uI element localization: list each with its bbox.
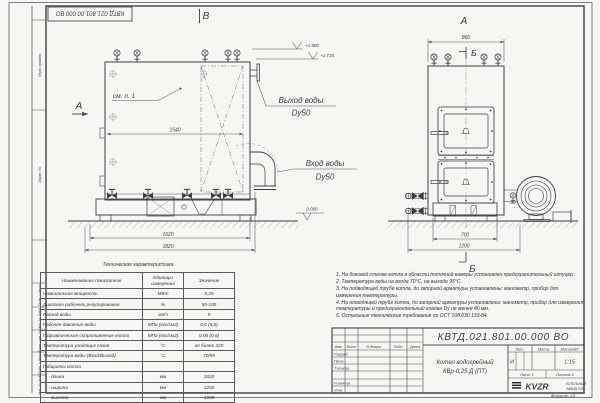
section-arrow-label: А xyxy=(75,101,83,112)
format-label: Формат А3 xyxy=(551,394,576,399)
spec-header-cell: Значение xyxy=(184,273,235,289)
spec-cell: Гидравлическое сопротивление котла xyxy=(41,330,143,340)
inlet-dn: Dy50 xyxy=(316,173,335,182)
frame-label: Справ. № xyxy=(38,167,42,183)
tb-col-podp: Подп. xyxy=(393,345,403,349)
spec-cell: - высота xyxy=(41,392,143,402)
tb-role: Н.контр. xyxy=(334,380,351,385)
spec-cell: 1200 xyxy=(184,382,235,392)
table-row: Рабочее давление водыМПа (кгс/см2)0,6 (6… xyxy=(41,320,235,330)
doc-number: КВТД.021.801.00.000 ВО xyxy=(438,332,570,343)
tb-col-data: Дата xyxy=(409,345,420,349)
spec-header-cell: Наименование показателя xyxy=(41,273,143,289)
spec-cell: % xyxy=(143,299,184,309)
note-item: 4. На отводящей трубе котла, до запорной… xyxy=(336,300,584,312)
spec-cell: МПа (кгс/см2) xyxy=(143,330,184,340)
table-row: Температура воды (Вход/Выход)°С70/95 xyxy=(41,351,235,361)
spec-cell xyxy=(143,361,184,371)
spec-cell: Диапазон рабочего регулирования xyxy=(41,299,143,309)
spec-table: Наименование показателя Единицы измерени… xyxy=(40,272,235,403)
tb-role: Утв. xyxy=(334,387,343,392)
spec-cell: 1820 xyxy=(184,372,235,382)
spec-cell: °С xyxy=(143,351,184,361)
note-item: 3. На подводящей трубе котла, до запорно… xyxy=(336,286,584,298)
side-view-label: А xyxy=(460,16,468,27)
mass-label: Масса xyxy=(538,347,549,351)
table-row: Габариты котла xyxy=(41,361,235,371)
section-b-top-label: Б xyxy=(471,48,477,58)
front-view-label: В xyxy=(203,11,210,22)
top-stamp-number: КВТД.021.801.00.000 ВО xyxy=(55,10,124,16)
dim-1820: 1820 xyxy=(162,244,173,250)
spec-cell: 70/95 xyxy=(184,351,235,361)
table-row: - ширинамм1200 xyxy=(41,382,235,392)
spec-cell: мм xyxy=(143,372,184,382)
frame-label: Перв. примен. xyxy=(38,53,42,77)
elev-1900: +1.900 xyxy=(305,43,319,48)
dim-1620: 1620 xyxy=(162,232,173,238)
spec-cell: мм xyxy=(143,392,184,402)
spec-cell: 9 xyxy=(184,309,235,319)
tb-col-izm: Изм. xyxy=(334,345,342,349)
spec-header-row: Наименование показателя Единицы измерени… xyxy=(41,273,235,289)
sheets-total: Листов 2 xyxy=(555,372,575,377)
dim-860: 860 xyxy=(462,35,471,41)
note-item: 2. Температура воды на входе 70°С, на вы… xyxy=(336,279,584,285)
elev-1735: +1.735 xyxy=(320,53,334,58)
outlet-label: Выход воды xyxy=(279,96,324,105)
tb-role: Пров. xyxy=(334,358,345,363)
see-item-text: см. п. 1 xyxy=(113,93,136,100)
note-item: 1. На боковой стенке котла в области топ… xyxy=(336,272,584,278)
spec-cell: м3/ч xyxy=(143,309,184,319)
table-row: Номинальная мощностьМВт0,25 xyxy=(41,289,235,299)
outlet-dn: Dy50 xyxy=(292,109,311,118)
spec-cell: 50-100 xyxy=(184,299,235,309)
tb-role: Разраб. xyxy=(334,351,348,356)
drawing-sheet: { "frame": { "stamp_number": "КВТД.021.8… xyxy=(0,0,600,400)
spec-cell: 1900 xyxy=(184,392,235,402)
inlet-label: Вход воды xyxy=(306,159,345,168)
notes-block: 1. На боковой стенке котла в области топ… xyxy=(336,272,584,320)
table-row: Диапазон рабочего регулирования%50-100 xyxy=(41,299,235,309)
tb-role: Т.контр. xyxy=(334,365,350,370)
spec-cell: Температура уходящих газов xyxy=(41,340,143,350)
ground-line xyxy=(388,221,578,228)
table-row: Температура уходящих газов°Сне более 220 xyxy=(41,340,235,350)
lit-label: Лит. xyxy=(515,347,525,351)
spec-cell: 0,25 xyxy=(184,289,235,299)
spec-cell: Температура воды (Вход/Выход) xyxy=(41,351,143,361)
table-row: Гидравлическое сопротивление котлаМПа (к… xyxy=(41,330,235,340)
table-row: - длинамм1820 xyxy=(41,372,235,382)
spec-cell: 0,06 (0,6) xyxy=(184,330,235,340)
sheet-number: Лист 1 xyxy=(519,372,534,377)
table-row: - высотамм1900 xyxy=(41,392,235,402)
logo-sub2: ЗАВОД РЭП xyxy=(566,387,585,391)
logo-sub1: КОТЕЛЬНЫЙ xyxy=(566,382,587,386)
note-item: 5. Остальные технические требования по О… xyxy=(336,313,584,319)
dim-1540: 1540 xyxy=(169,128,180,134)
spec-cell: Расход воды xyxy=(41,309,143,319)
spec-cell: мм xyxy=(143,382,184,392)
product-name-line2: КВр-0,25 Д (ПТ) xyxy=(443,369,487,375)
logo-text: KVZR xyxy=(525,382,549,392)
spec-cell xyxy=(184,361,235,371)
ground-line xyxy=(68,221,298,228)
spec-cell: МВт xyxy=(143,289,184,299)
spec-cell: °С xyxy=(143,340,184,350)
spec-cell: МПа (кгс/см2) xyxy=(143,320,184,330)
spec-cell: не более 220 xyxy=(184,340,235,350)
scale-label: Масштаб xyxy=(561,347,580,351)
tb-col-ndocum: N докум. xyxy=(366,345,381,349)
table-row: Расход водым3/ч9 xyxy=(41,309,235,319)
spec-cell: Габариты котла xyxy=(41,361,143,371)
scale-value: 1:15 xyxy=(564,360,576,366)
spec-cell: Рабочее давление воды xyxy=(41,320,143,330)
lit-value: И xyxy=(510,360,514,366)
spec-cell: 0,6 (6,0) xyxy=(184,320,235,330)
spec-table-title: Техническая характеристика xyxy=(40,263,236,269)
spec-cell: - ширина xyxy=(41,382,143,392)
dim-700: 700 xyxy=(461,233,470,239)
spec-header-cell: Единицы измерения xyxy=(143,273,184,289)
spec-cell: Номинальная мощность xyxy=(41,289,143,299)
elev-0000: 0.000 xyxy=(306,207,318,212)
dim-1200: 1200 xyxy=(458,244,469,250)
spec-cell: - длина xyxy=(41,372,143,382)
product-name-line1: Котел водогрейный xyxy=(436,359,494,366)
tb-col-list: Лист xyxy=(346,345,357,349)
